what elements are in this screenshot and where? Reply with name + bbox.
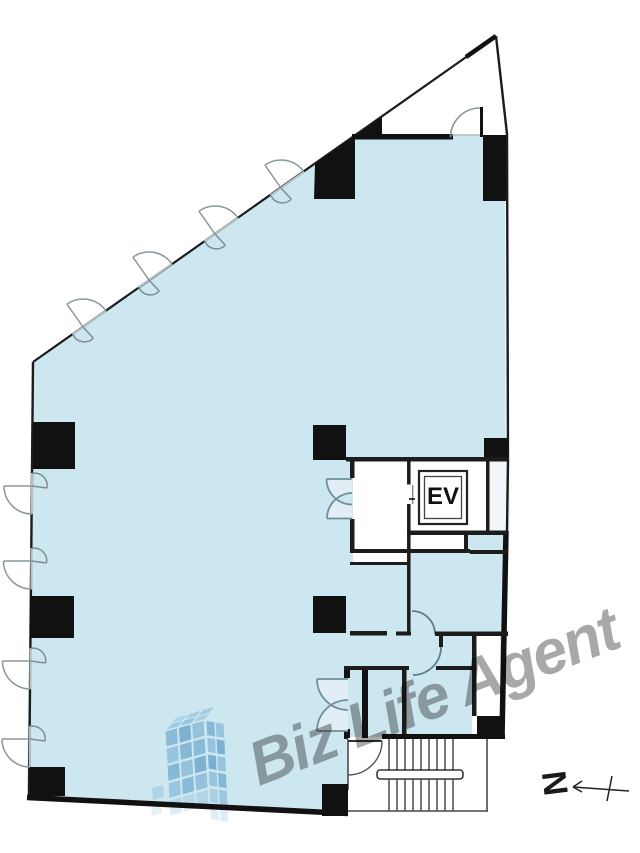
svg-text:N: N (535, 769, 576, 798)
svg-text:EV: EV (427, 483, 459, 510)
